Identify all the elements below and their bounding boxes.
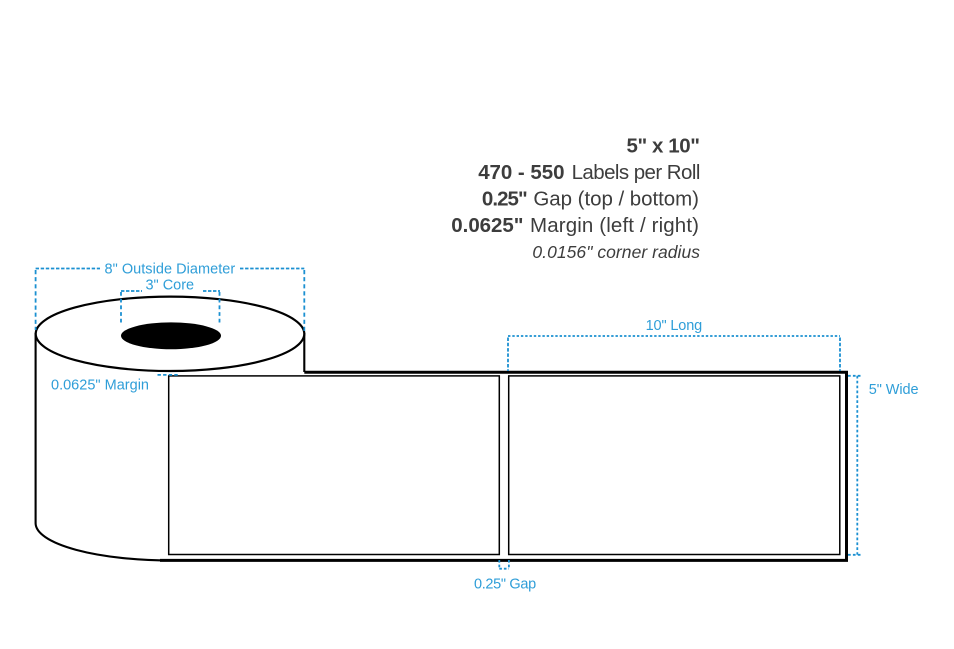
svg-text:0.0625": 0.0625" [451,214,523,237]
svg-text:Margin (left / right): Margin (left / right) [530,214,699,237]
svg-text:470 - 550: 470 - 550 [478,161,564,184]
svg-text:Labels per Roll: Labels per Roll [572,161,701,184]
svg-text:5" Wide: 5" Wide [869,382,919,398]
svg-text:0.0625" Margin: 0.0625" Margin [51,378,149,394]
svg-text:8" Outside Diameter: 8" Outside Diameter [105,262,236,278]
svg-text:0.0156" corner radius: 0.0156" corner radius [532,242,700,262]
svg-text:10" Long: 10" Long [646,318,703,334]
svg-text:3" Core: 3" Core [146,278,195,294]
svg-text:0.25" Gap: 0.25" Gap [474,577,536,593]
svg-text:0.25": 0.25" [482,187,528,210]
svg-text:5" x 10": 5" x 10" [627,135,701,158]
svg-text:Gap (top / bottom): Gap (top / bottom) [533,187,699,210]
